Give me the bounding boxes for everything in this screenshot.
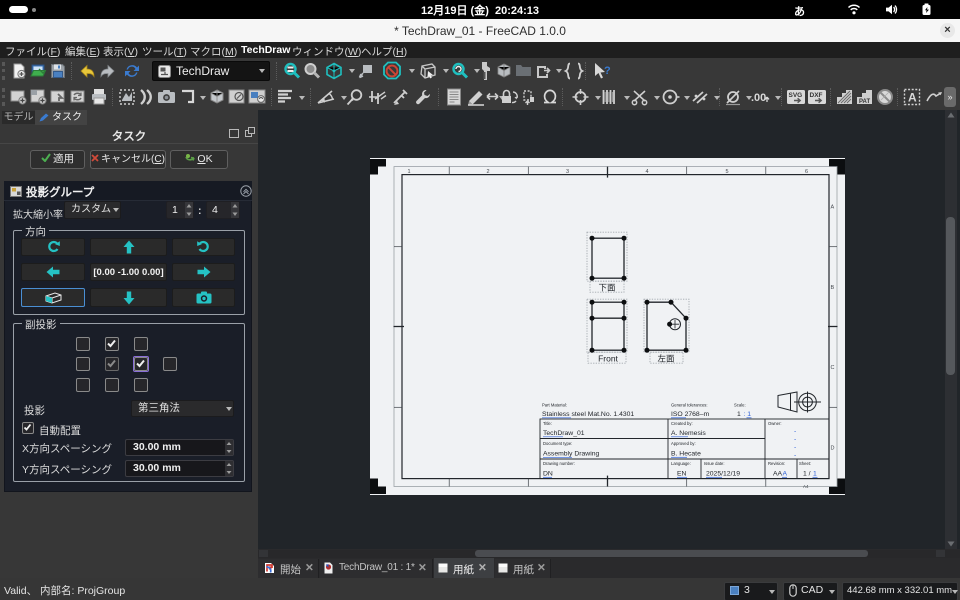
svg-text:A. Nemesis: A. Nemesis xyxy=(671,430,706,437)
svg-text:A: A xyxy=(831,205,835,211)
svg-text:.00: .00 xyxy=(751,92,766,104)
svg-text:1: 1 xyxy=(813,471,817,478)
svg-text:Owner:: Owner: xyxy=(768,421,782,426)
svg-text:左面: 左面 xyxy=(657,353,675,363)
svg-text:2025/12/19: 2025/12/19 xyxy=(706,471,740,478)
svg-text:Title:: Title: xyxy=(543,421,552,426)
svg-text:6: 6 xyxy=(805,169,808,175)
svg-text:: 1: : 1 xyxy=(744,411,752,418)
svg-text:?: ? xyxy=(604,65,611,77)
svg-text:Language:: Language: xyxy=(671,461,691,466)
svg-text:4: 4 xyxy=(645,169,648,175)
svg-text:Document type:: Document type: xyxy=(543,441,572,446)
svg-text:TechDraw_01: TechDraw_01 xyxy=(543,430,585,437)
svg-text:-: - xyxy=(794,428,796,435)
svg-text:Approved by:: Approved by: xyxy=(671,441,696,446)
svg-text:Front: Front xyxy=(598,353,618,363)
svg-text:Revision:: Revision: xyxy=(768,461,785,466)
svg-text:D: D xyxy=(831,446,835,452)
svg-text:B: B xyxy=(831,285,835,291)
svg-text:SVG: SVG xyxy=(789,92,803,99)
svg-text:Stainless steel Mat.No. 1.4301: Stainless steel Mat.No. 1.4301 xyxy=(542,411,634,418)
svg-text:-: - xyxy=(794,436,796,443)
svg-text:下面: 下面 xyxy=(598,282,616,292)
svg-text:A: A xyxy=(783,471,788,478)
svg-text:Created by:: Created by: xyxy=(671,421,693,426)
svg-text:B. Hecate: B. Hecate xyxy=(671,451,701,458)
svg-text:-: - xyxy=(794,444,796,451)
svg-text:Sheet:: Sheet: xyxy=(799,461,811,466)
svg-text:1: 1 xyxy=(407,169,410,175)
svg-text:Scale:: Scale: xyxy=(734,403,746,408)
svg-text:C: C xyxy=(831,365,835,371)
svg-text:DXF: DXF xyxy=(810,92,823,99)
svg-text:3: 3 xyxy=(566,169,569,175)
svg-text:Part Material:: Part Material: xyxy=(542,403,567,408)
svg-text:5: 5 xyxy=(725,169,728,175)
svg-text:DN: DN xyxy=(543,471,553,478)
svg-text:1 /: 1 / xyxy=(803,471,811,478)
svg-text:Assembly Drawing: Assembly Drawing xyxy=(543,451,599,458)
svg-text:-: - xyxy=(794,452,796,459)
svg-text:A4: A4 xyxy=(803,484,809,489)
svg-text:EN: EN xyxy=(677,471,687,478)
svg-text:Issue date:: Issue date: xyxy=(704,461,725,466)
svg-text:ISO 2768–m: ISO 2768–m xyxy=(671,411,709,418)
svg-text:PAT: PAT xyxy=(859,99,870,105)
svg-text:Drawing number:: Drawing number: xyxy=(543,461,575,466)
svg-text:General tolerances:: General tolerances: xyxy=(671,403,708,408)
svg-text:A: A xyxy=(908,91,917,105)
svg-text:1: 1 xyxy=(737,411,741,418)
svg-text:2: 2 xyxy=(486,169,489,175)
svg-text:AA: AA xyxy=(773,471,783,478)
